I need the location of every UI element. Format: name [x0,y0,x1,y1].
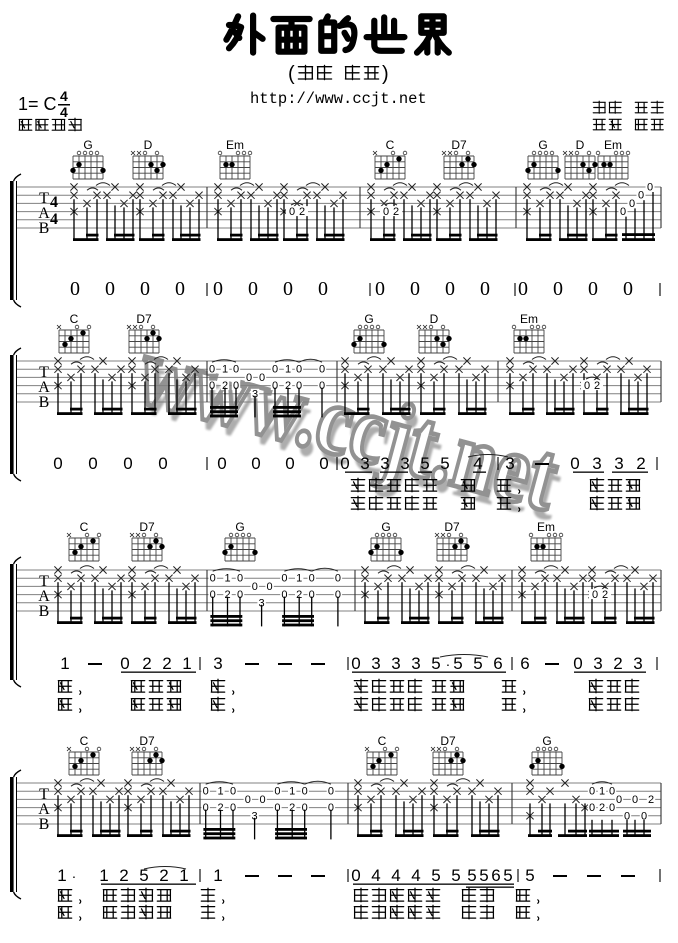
svg-text:3: 3 [592,454,601,473]
svg-text:B: B [39,220,50,237]
svg-text:6: 6 [493,654,502,673]
svg-text:0: 0 [319,364,325,376]
svg-text:0: 0 [296,364,302,376]
svg-text:0: 0 [647,182,653,194]
svg-text:D7: D7 [139,520,155,534]
svg-text:3: 3 [360,454,369,473]
svg-text:0: 0 [252,581,258,593]
svg-text:D: D [576,138,585,152]
svg-text:C: C [70,312,79,326]
svg-text:0: 0 [210,573,216,585]
svg-text:0: 0 [319,454,328,473]
svg-text:0: 0 [245,794,251,806]
svg-text:0: 0 [620,206,626,218]
svg-text:B: B [39,394,50,411]
svg-text:1: 1 [285,364,291,376]
svg-text:(: ( [288,63,295,85]
svg-text:0: 0 [518,278,528,300]
svg-text:0: 0 [230,786,236,798]
svg-text:3: 3 [411,654,420,673]
svg-text:5: 5 [431,866,440,885]
svg-text:D7: D7 [440,734,456,748]
svg-text:5: 5 [431,654,440,673]
svg-text:5: 5 [440,454,449,473]
svg-text:4: 4 [60,88,68,104]
svg-text:2: 2 [142,654,151,673]
svg-text:3: 3 [614,454,623,473]
svg-text:0: 0 [123,454,132,473]
svg-text:0: 0 [302,786,308,798]
svg-text:0: 0 [246,372,252,384]
svg-text:0: 0 [53,454,62,473]
svg-text:0: 0 [573,654,582,673]
svg-text:4: 4 [50,194,58,211]
svg-text:C: C [378,734,387,748]
svg-text:0: 0 [629,198,635,210]
svg-text:0: 0 [410,278,420,300]
svg-text:0: 0 [203,786,209,798]
svg-text:0: 0 [480,278,490,300]
svg-text:0: 0 [340,454,349,473]
svg-text:0: 0 [140,278,150,300]
svg-text:2: 2 [602,589,608,601]
svg-text:http://www.ccjt.net: http://www.ccjt.net [250,90,427,108]
svg-text:D7: D7 [451,138,467,152]
svg-text:0: 0 [588,278,598,300]
svg-text:0: 0 [233,364,239,376]
svg-text:2: 2 [162,654,171,673]
svg-text:D7: D7 [444,520,460,534]
svg-text:5: 5 [467,866,476,885]
svg-text:0: 0 [328,786,334,798]
svg-text:0: 0 [120,654,129,673]
svg-text:Em: Em [537,520,555,534]
svg-text:B: B [39,816,50,833]
svg-text:0: 0 [285,454,294,473]
svg-text:0: 0 [589,802,595,814]
svg-text:5: 5 [503,866,512,885]
svg-text:C: C [386,138,395,152]
svg-text:1: 1 [224,573,230,585]
svg-text:0: 0 [638,190,644,202]
svg-text:1: 1 [217,786,223,798]
svg-text:·: · [446,656,451,672]
svg-text:0: 0 [383,206,389,218]
svg-text:1: 1 [296,573,302,585]
svg-text:0: 0 [445,278,455,300]
svg-text:3: 3 [371,654,380,673]
svg-text:C: C [80,734,89,748]
svg-text:G: G [538,138,547,152]
svg-text:0: 0 [259,372,265,384]
svg-text:): ) [382,63,389,85]
svg-text:3: 3 [391,654,400,673]
svg-text:0: 0 [88,454,97,473]
svg-text:0: 0 [632,794,638,806]
svg-text:0: 0 [351,866,360,885]
svg-text:1: 1 [289,786,295,798]
svg-text:B: B [39,603,50,620]
svg-text:1: 1 [213,866,222,885]
svg-text:3: 3 [400,454,409,473]
svg-text:1: 1 [57,866,66,885]
svg-text:3: 3 [213,654,222,673]
svg-text:Em: Em [604,138,622,152]
svg-text:2: 2 [393,206,399,218]
svg-text:0: 0 [267,581,273,593]
svg-text:0: 0 [318,278,328,300]
svg-text:0: 0 [217,454,226,473]
svg-text:0: 0 [335,573,341,585]
svg-text:1: 1 [599,786,605,798]
svg-text:1: 1 [222,364,228,376]
svg-text:D7: D7 [136,312,152,326]
svg-text:2: 2 [636,454,645,473]
svg-text:4: 4 [473,454,482,473]
svg-text:G: G [542,734,551,748]
svg-text:G: G [235,520,244,534]
svg-text:4: 4 [60,104,68,120]
svg-text:0: 0 [609,802,615,814]
svg-text:0: 0 [616,794,622,806]
svg-text:1: 1 [182,654,191,673]
svg-text:4: 4 [371,866,380,885]
svg-text:2: 2 [599,802,605,814]
svg-text:D7: D7 [139,734,155,748]
svg-text:0: 0 [553,278,563,300]
svg-text:0: 0 [272,364,278,376]
svg-text:0: 0 [570,454,579,473]
svg-text:4: 4 [50,211,58,228]
svg-text:0: 0 [158,454,167,473]
svg-text:0: 0 [251,454,260,473]
svg-text:C: C [80,520,89,534]
svg-text:3: 3 [633,654,642,673]
svg-text:G: G [364,312,373,326]
svg-text:5: 5 [473,654,482,673]
svg-text:0: 0 [375,278,385,300]
svg-text:0: 0 [70,278,80,300]
svg-text:2: 2 [613,654,622,673]
svg-text:1= C: 1= C [18,94,57,114]
svg-text:0: 0 [309,573,315,585]
svg-text:3: 3 [593,654,602,673]
svg-text:5: 5 [420,454,429,473]
svg-text:0: 0 [209,364,215,376]
svg-text:G: G [381,520,390,534]
svg-text:0: 0 [351,654,360,673]
svg-text:0: 0 [592,589,598,601]
svg-text:1: 1 [99,866,108,885]
svg-text:Em: Em [226,138,244,152]
svg-text:0: 0 [584,380,590,392]
svg-text:5: 5 [525,866,534,885]
svg-text:0: 0 [289,206,295,218]
svg-text:0: 0 [281,573,287,585]
svg-text:3: 3 [380,454,389,473]
svg-text:2: 2 [648,794,654,806]
svg-text:D: D [430,312,439,326]
svg-text:5: 5 [479,866,488,885]
svg-text:6: 6 [491,866,500,885]
svg-text:6: 6 [520,654,529,673]
svg-text:Em: Em [520,312,538,326]
svg-text:0: 0 [213,278,223,300]
svg-text:4: 4 [391,866,400,885]
svg-text:1: 1 [60,654,69,673]
svg-text:0: 0 [589,786,595,798]
svg-text:5: 5 [451,866,460,885]
svg-text:0: 0 [175,278,185,300]
svg-text:2: 2 [594,380,600,392]
svg-text:G: G [83,138,92,152]
svg-text:0: 0 [260,794,266,806]
svg-text:0: 0 [283,278,293,300]
svg-text:0: 0 [609,786,615,798]
svg-text:2: 2 [119,866,128,885]
svg-text:0: 0 [274,786,280,798]
svg-text:2: 2 [299,206,305,218]
svg-text:0: 0 [248,278,258,300]
svg-text:D: D [144,138,153,152]
svg-text:5: 5 [453,654,462,673]
svg-text:2: 2 [159,866,168,885]
svg-text:4: 4 [411,866,420,885]
svg-text:·: · [72,868,77,884]
svg-text:0: 0 [105,278,115,300]
svg-text:0: 0 [623,278,633,300]
svg-text:0: 0 [237,573,243,585]
